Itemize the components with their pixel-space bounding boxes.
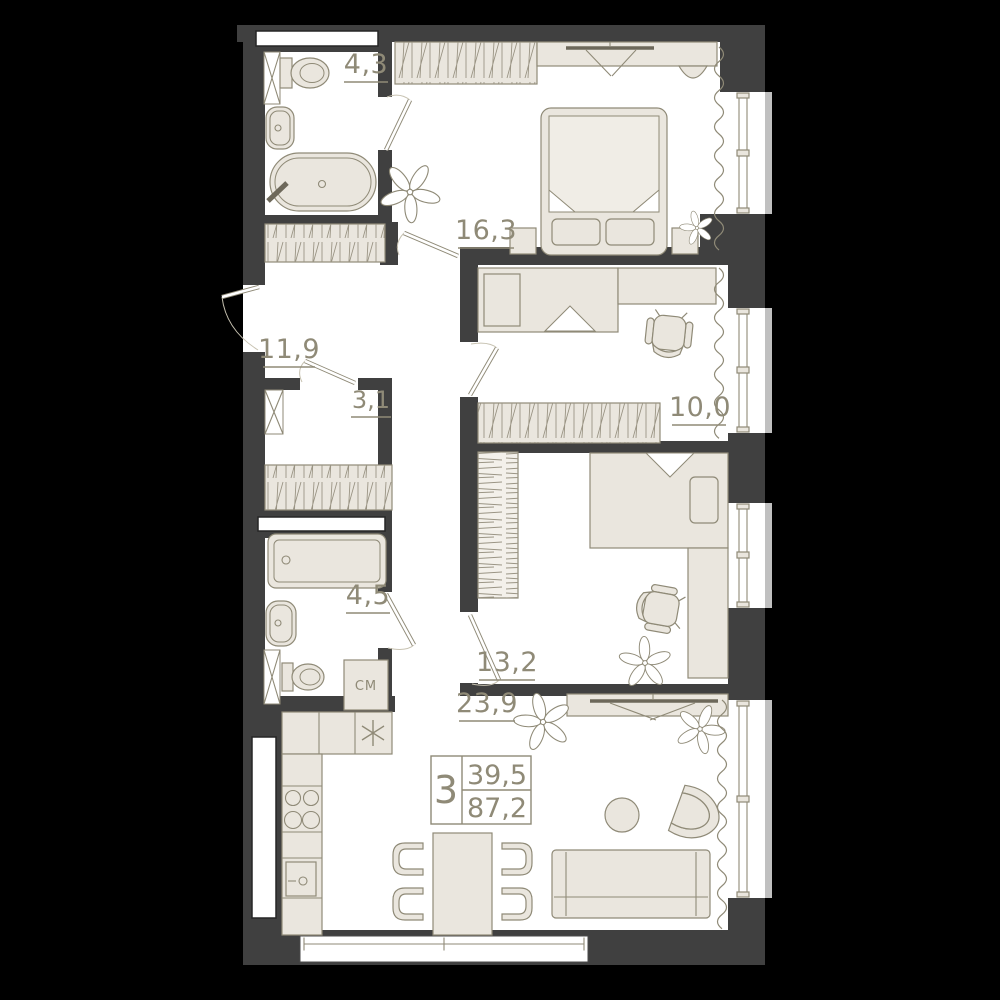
hallway-wardrobe (265, 224, 385, 262)
desk (618, 268, 716, 304)
area-value: 10,0 (669, 392, 731, 423)
coffee-table (605, 798, 639, 832)
floor-plan-page: СМ (0, 0, 1000, 1000)
area-value: 16,3 (455, 215, 517, 246)
area-value: 4,3 (344, 49, 388, 80)
living-area: 39,5 (467, 760, 527, 791)
shaft-left (252, 737, 276, 918)
rooms-count: 3 (434, 768, 458, 812)
window-child (728, 308, 772, 433)
area-label-bathroom-top: 4,3 (344, 49, 388, 82)
wardrobe (395, 42, 537, 84)
bathtub (268, 153, 376, 211)
washing-machine-label: СМ (355, 679, 377, 694)
area-value: 13,2 (476, 647, 538, 678)
wardrobe (265, 465, 392, 510)
area-value: 4,5 (346, 580, 390, 611)
area-label-hallway: 11,9 (258, 334, 320, 367)
wardrobe (478, 403, 660, 443)
area-value: 3,1 (352, 386, 390, 414)
washing-machine: СМ (344, 660, 388, 710)
shelving-wardrobe (478, 452, 518, 598)
area-label-bathroom-bottom: 4,5 (346, 580, 390, 613)
double-bed (541, 108, 667, 255)
single-bed (478, 268, 618, 332)
total-area: 87,2 (467, 793, 527, 824)
bed (590, 453, 728, 548)
area-value: 23,9 (456, 688, 518, 719)
shaft-mid (258, 517, 385, 531)
tv-stand (537, 42, 717, 66)
balcony-window (300, 936, 588, 962)
area-label-bedroom-child: 10,0 (669, 392, 731, 425)
sink (266, 601, 296, 646)
area-label-bedroom-master: 16,3 (455, 215, 517, 248)
desk (688, 548, 728, 678)
dining-table (433, 833, 492, 935)
shaft-top (256, 31, 378, 46)
window-living (728, 700, 772, 898)
area-label-storage: 3,1 (351, 386, 391, 417)
area-value: 11,9 (258, 334, 320, 365)
summary-box: 3 39,5 87,2 (431, 756, 531, 824)
sink (266, 107, 294, 149)
window-second (728, 503, 772, 608)
sofa (552, 850, 710, 918)
floor-plan-svg: СМ (0, 0, 1000, 1000)
toilet (280, 58, 329, 88)
kitchen-sink (286, 862, 316, 896)
toilet (282, 663, 324, 691)
window-master (728, 92, 772, 214)
area-label-kitchen-living: 23,9 (456, 688, 518, 721)
area-label-bedroom-second: 13,2 (476, 647, 538, 680)
